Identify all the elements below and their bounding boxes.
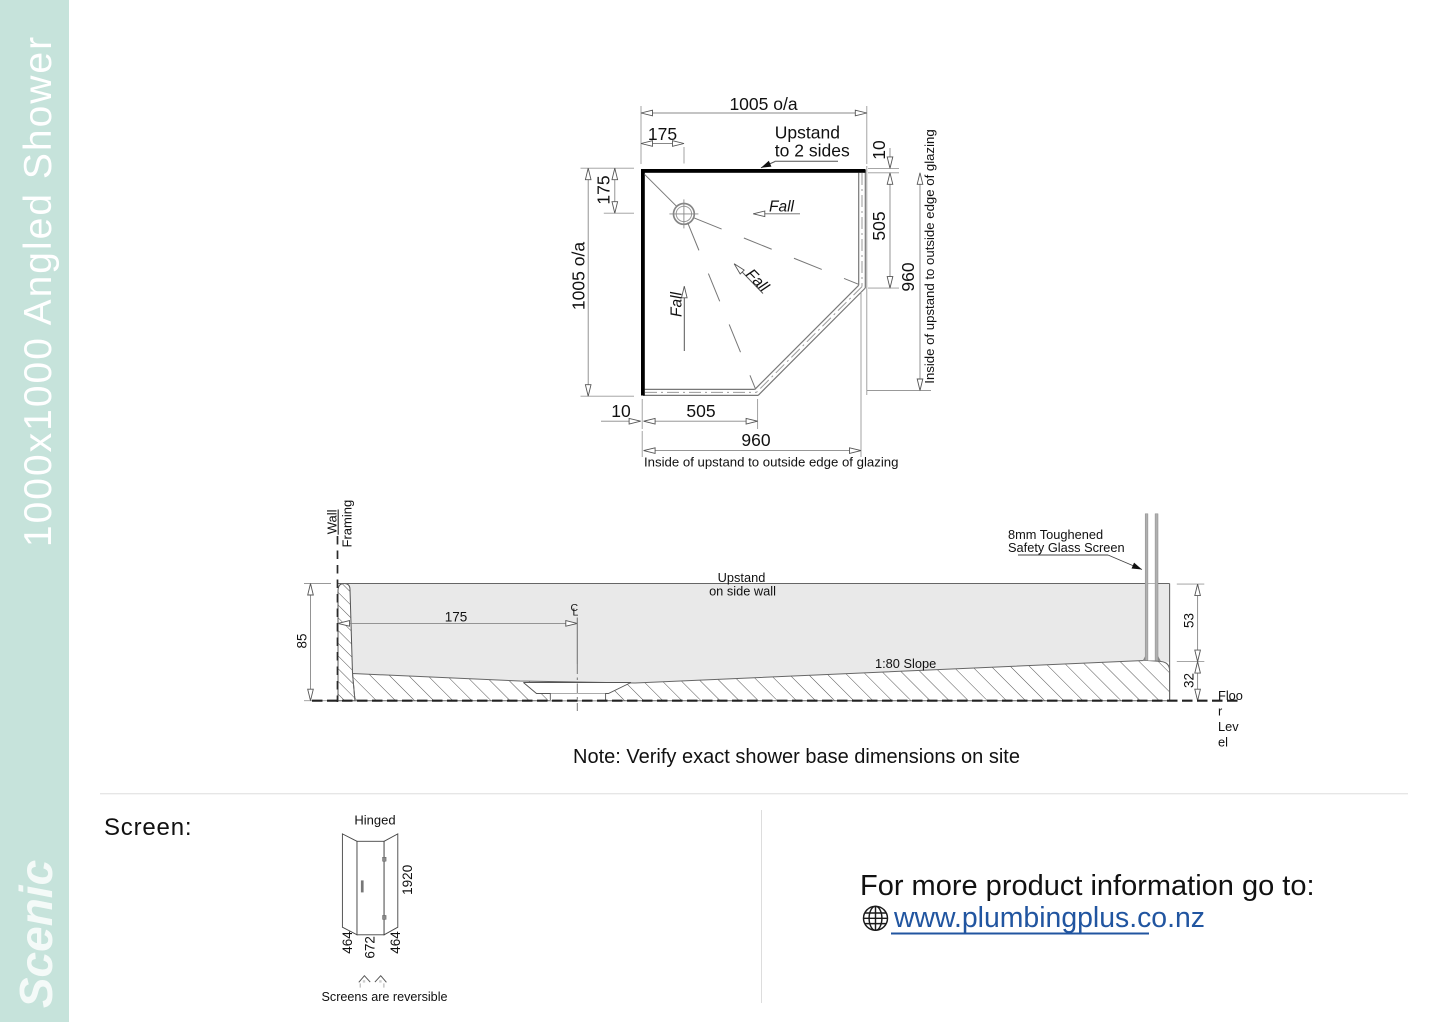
svg-text:Fall: Fall — [669, 291, 686, 317]
svg-text:Hinged: Hinged — [354, 813, 395, 828]
svg-text:1:80 Slope: 1:80 Slope — [875, 656, 936, 671]
svg-text:Fall: Fall — [769, 199, 795, 216]
svg-text:10: 10 — [869, 140, 889, 160]
svg-text:el: el — [1218, 735, 1228, 750]
svg-text:Floo: Floo — [1218, 688, 1243, 703]
svg-text:505: 505 — [869, 211, 889, 240]
svg-text:672: 672 — [363, 936, 378, 959]
svg-text:Lev: Lev — [1218, 719, 1239, 734]
svg-text:Safety Glass Screen: Safety Glass Screen — [1008, 540, 1125, 555]
svg-text:505: 505 — [686, 401, 715, 421]
svg-text:L: L — [573, 607, 579, 619]
svg-text:1005 o/a: 1005 o/a — [729, 94, 797, 114]
svg-text:175: 175 — [648, 124, 677, 144]
svg-text:1920: 1920 — [400, 865, 415, 895]
svg-text:to 2 sides: to 2 sides — [775, 141, 850, 161]
svg-text:85: 85 — [295, 633, 310, 648]
svg-text:960: 960 — [741, 430, 770, 450]
svg-text:www.plumbingplus.co.nz: www.plumbingplus.co.nz — [893, 902, 1205, 934]
svg-text:Wall: Wall — [325, 509, 340, 534]
svg-text:Fall: Fall — [742, 266, 772, 296]
svg-text:Inside of upstand to outside e: Inside of upstand to outside edge of gla… — [644, 455, 898, 470]
svg-text:r: r — [1218, 704, 1223, 719]
svg-text:53: 53 — [1182, 613, 1197, 628]
svg-text:on side wall: on side wall — [709, 584, 776, 599]
svg-text:Note: Verify exact shower base: Note: Verify exact shower base dimension… — [573, 746, 1020, 768]
svg-text:175: 175 — [445, 610, 468, 625]
svg-text:10: 10 — [611, 401, 631, 421]
svg-text:175: 175 — [594, 175, 614, 204]
svg-text:960: 960 — [898, 262, 918, 291]
svg-text:Framing: Framing — [340, 500, 355, 548]
svg-text:32: 32 — [1182, 673, 1197, 688]
svg-text:464: 464 — [388, 931, 403, 954]
svg-text:Screen:: Screen: — [104, 814, 192, 841]
svg-text:Upstand: Upstand — [775, 122, 840, 142]
svg-text:464: 464 — [340, 931, 355, 954]
svg-text:Inside of upstand to outside e: Inside of upstand to outside edge of gla… — [922, 129, 937, 383]
svg-text:Screens are reversible: Screens are reversible — [322, 990, 448, 1004]
svg-text:For more product information g: For more product information go to: — [860, 870, 1315, 902]
svg-text:1005 o/a: 1005 o/a — [569, 242, 589, 310]
